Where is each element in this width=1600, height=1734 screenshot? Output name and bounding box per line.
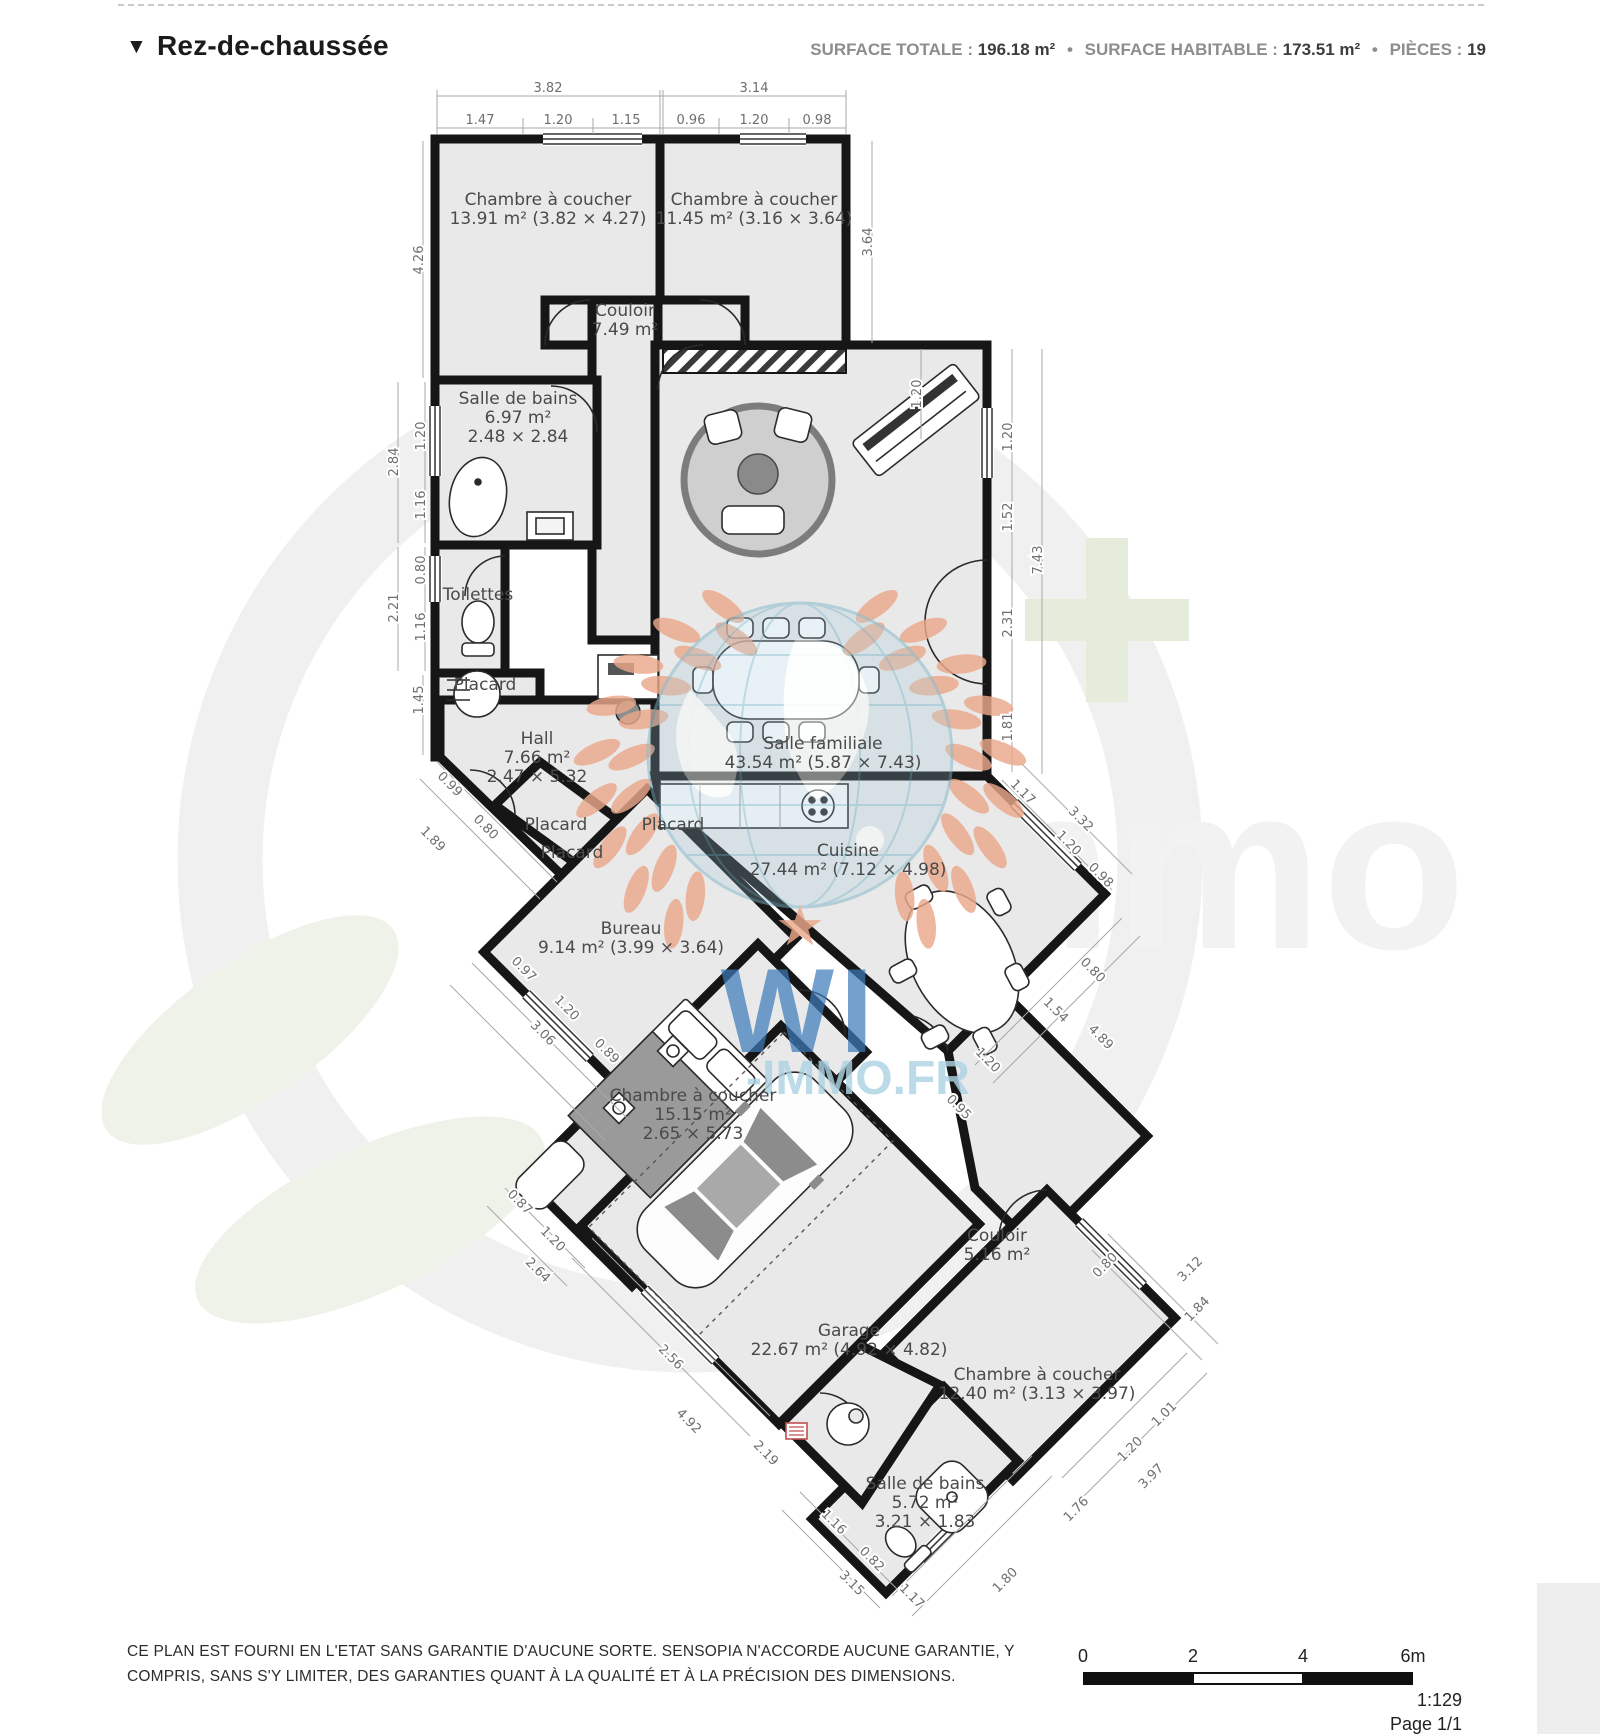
room-label-placard-3: Placard (541, 843, 604, 863)
scale-bar: 0 2 4 6m (1083, 1646, 1413, 1706)
dimension-label: 1.20 (1001, 423, 1016, 452)
hatched-wall (663, 349, 846, 373)
room-label-chambre-4: Chambre à coucher12.40 m² (3.13 × 3.97) (939, 1365, 1136, 1404)
dimension-label: 1.84 (1182, 1294, 1213, 1325)
dimension-label: 3.82 (534, 81, 563, 96)
dimension-label: 1.81 (1001, 713, 1016, 742)
dimension-label: 1.20 (537, 1224, 568, 1255)
water-heater (827, 1403, 869, 1445)
scale-bar-segments (1083, 1672, 1413, 1685)
dimension-label: 2.84 (387, 448, 402, 477)
dimension-label: 1.16 (414, 491, 429, 520)
dimension-label: 2.31 (1001, 609, 1016, 638)
dimension-label: 4.92 (673, 1406, 704, 1437)
dimension-label: 1.01 (1149, 1399, 1180, 1430)
dimension-label: 1.20 (544, 113, 573, 128)
dimension-label: 1.47 (466, 113, 495, 128)
scale-meta: 1:129 Page 1/1 (1390, 1688, 1462, 1734)
dimension-label: 2.21 (387, 594, 402, 623)
room-label-chambre-2: Chambre à coucher11.45 m² (3.16 × 3.64) (656, 190, 853, 229)
toilet (462, 601, 494, 656)
disclaimer: CE PLAN EST FOURNI EN L'ETAT SANS GARANT… (127, 1640, 1015, 1690)
page-number: Page 1/1 (1390, 1712, 1462, 1734)
room-label-placard-2: Placard (525, 815, 588, 835)
scale-tick-0: 0 (1078, 1646, 1088, 1667)
dimension-label: 0.96 (677, 113, 706, 128)
dimension-label: 1.76 (1061, 1494, 1092, 1525)
dimension-label: 1.80 (990, 1565, 1021, 1596)
dimension-label: 2.19 (750, 1438, 781, 1469)
dimension-label: 3.64 (861, 228, 876, 257)
room-label-toilettes: Toilettes (442, 585, 514, 605)
dimension-label: 1.89 (417, 824, 448, 855)
dimension-label: 7.43 (1031, 546, 1046, 575)
disclaimer-line-1: CE PLAN EST FOURNI EN L'ETAT SANS GARANT… (127, 1640, 1015, 1665)
dimension-label: 1.20 (414, 422, 429, 451)
radiator-icon (786, 1423, 807, 1439)
brand-sub: -IMMO.FR (746, 1052, 970, 1105)
scale-tick-4: 4 (1298, 1646, 1308, 1667)
room-label-placard-1: Placard (454, 675, 517, 695)
room-label-placard-4: Placard (642, 815, 705, 835)
dimension-label: 1.16 (414, 613, 429, 642)
dimension-label: 1.52 (1001, 503, 1016, 532)
dimension-label: 3.97 (1136, 1461, 1167, 1492)
room-couloir-1b (592, 300, 658, 640)
dimension-label: 4.26 (412, 246, 427, 275)
scale-tick-2: 2 (1188, 1646, 1198, 1667)
floor-plan-page: ▼Rez-de-chaussée SURFACE TOTALE : 196.18… (0, 0, 1600, 1734)
dimension-label: 1.54 (1040, 995, 1071, 1026)
dimension-label: 1.20 (740, 113, 769, 128)
dimension-label: 3.14 (740, 81, 769, 96)
dimension-label: 3.12 (1175, 1254, 1206, 1285)
room-label-couloir-2: Couloir5.16 m² (964, 1226, 1031, 1265)
disclaimer-line-2: COMPRIS, SANS S'Y LIMITER, DES GARANTIES… (127, 1665, 1015, 1690)
dimension-label: 1.15 (612, 113, 641, 128)
dimension-label: 0.80 (414, 556, 429, 585)
scale-ratio: 1:129 (1390, 1688, 1462, 1712)
dimension-label: 1.20 (910, 380, 925, 409)
dimension-label: 1.17 (896, 1581, 927, 1612)
scale-tick-6m: 6m (1400, 1646, 1425, 1667)
dimension-label: 1.45 (412, 686, 427, 715)
room-label-couloir-1: Couloir7.49 m² (592, 301, 659, 340)
floor-plan-drawing: mmo (0, 0, 1600, 1734)
dimension-label: 0.98 (803, 113, 832, 128)
room-label-chambre-1: Chambre à coucher13.91 m² (3.82 × 4.27) (450, 190, 647, 229)
